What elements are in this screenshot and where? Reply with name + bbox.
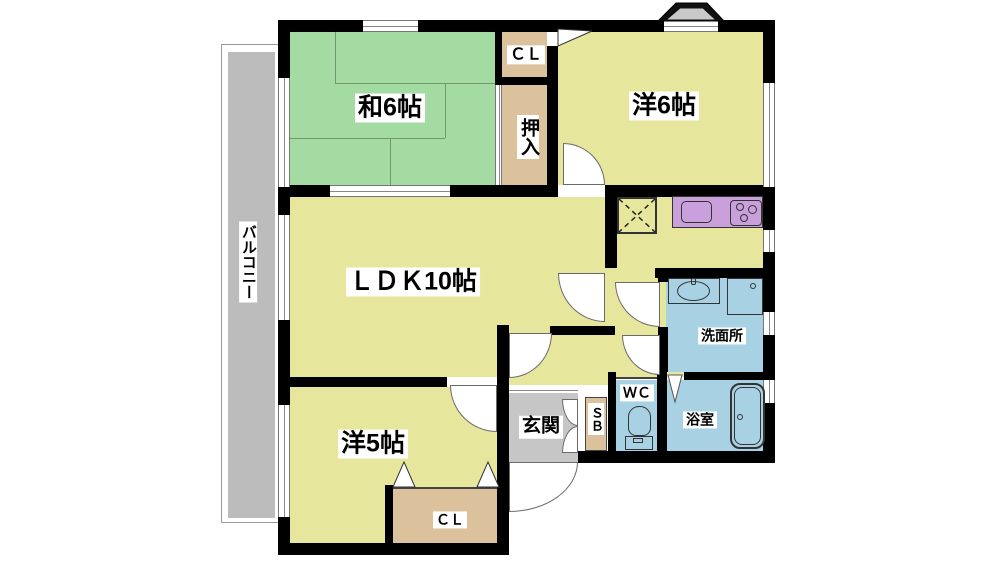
- room-label-japanese: 和6帖: [355, 94, 425, 123]
- wall: [450, 185, 558, 197]
- wall: [684, 372, 775, 380]
- tatami-line: [290, 138, 445, 139]
- oshiire-sliding-door: [495, 85, 502, 185]
- sliding-door: [330, 185, 450, 197]
- wall: [655, 268, 775, 278]
- refrigerator-space: [617, 197, 657, 234]
- window: [763, 312, 775, 335]
- room-label-oshiire: 押入: [517, 115, 539, 159]
- washing-machine-valve: [750, 283, 756, 289]
- entrance-step-line: [509, 390, 578, 391]
- tatami-line: [335, 83, 497, 84]
- stove-burner: [736, 203, 744, 211]
- tatami-line: [390, 138, 391, 185]
- bay-window-glass: [664, 20, 718, 32]
- window: [763, 230, 775, 252]
- wall: [605, 197, 617, 268]
- room-label-western6: 洋6帖: [629, 92, 699, 121]
- window: [278, 78, 290, 187]
- floor-plan: 和6帖 洋6帖 ＬＤＫ10帖 洋5帖 ＣＬ 押入 玄関 ＳＢ ＷＣ 洗面所 浴室…: [0, 0, 1000, 562]
- wall: [278, 20, 363, 32]
- wall: [385, 485, 393, 555]
- room-label-washroom: 洗面所: [698, 327, 746, 344]
- toilet-room-edge: [616, 377, 657, 379]
- tatami-line: [335, 32, 336, 83]
- washbasin-tap: [691, 278, 696, 285]
- wall: [497, 325, 509, 555]
- window: [278, 215, 290, 320]
- room-label-closet-lower: ＣＬ: [433, 511, 467, 528]
- room-label-ldk: ＬＤＫ10帖: [346, 268, 480, 297]
- wall: [658, 268, 668, 282]
- wall: [278, 20, 290, 78]
- stove: [730, 200, 762, 226]
- hallway-floor: [509, 377, 615, 385]
- room-label-toilet: ＷＣ: [620, 384, 654, 401]
- wall: [547, 46, 558, 185]
- closet-lower-edge: [393, 487, 497, 489]
- bay-window-inner: [666, 8, 716, 20]
- room-label-western5: 洋5帖: [338, 430, 408, 459]
- window: [363, 20, 418, 32]
- wall: [418, 20, 664, 32]
- bathtub-drain: [737, 414, 743, 420]
- wall: [763, 252, 775, 312]
- stove-burner: [748, 205, 757, 214]
- door-swing-front-door: [509, 462, 578, 512]
- room-label-bathroom: 浴室: [683, 411, 717, 428]
- wall: [278, 320, 290, 405]
- wall: [763, 20, 775, 83]
- wall: [608, 372, 616, 463]
- kitchen-sink: [681, 201, 712, 223]
- wall: [657, 372, 667, 463]
- room-label-entrance: 玄関: [519, 416, 563, 439]
- window: [763, 83, 775, 187]
- tatami-line: [445, 83, 446, 138]
- room-label-shoebox: ＳＢ: [588, 403, 604, 435]
- wall: [550, 326, 615, 335]
- wall: [278, 543, 509, 555]
- toilet-tank-button: [633, 438, 643, 443]
- wall: [495, 32, 502, 77]
- room-label-closet-upper: ＣＬ: [507, 45, 545, 64]
- stove-burner: [740, 214, 748, 222]
- washing-machine: [727, 278, 763, 315]
- window: [278, 405, 290, 517]
- bay-window: [658, 3, 724, 21]
- room-label-balcony: バルコニー: [239, 222, 257, 303]
- wall: [495, 77, 558, 85]
- wall: [278, 377, 447, 387]
- toilet-bowl: [628, 406, 651, 436]
